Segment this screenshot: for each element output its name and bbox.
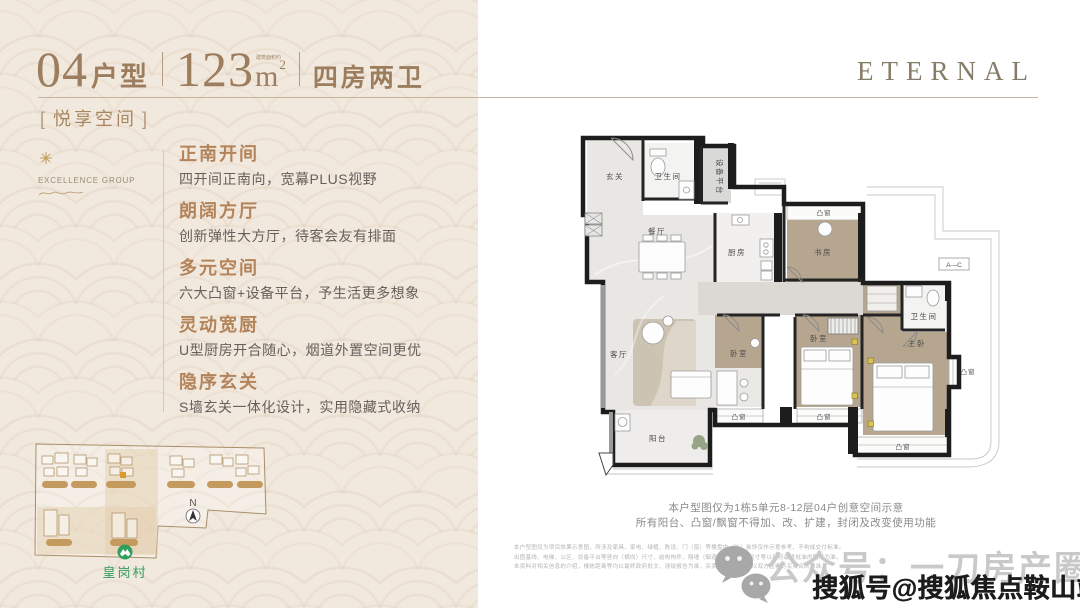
label-entry: 玄关 bbox=[606, 171, 624, 181]
feature-item: 灵动宽厨U型厨房开合随心，烟道外置空间更优 bbox=[179, 315, 471, 359]
feature-item: 隐序玄关S墙玄关一体化设计，实用隐藏式收纳 bbox=[179, 372, 471, 416]
caption-line-1: 本户型图仅为1栋5单元8-12层04户创意空间示意 bbox=[566, 501, 1006, 516]
area-value: 123 bbox=[176, 44, 254, 94]
label-balcony: 阳台 bbox=[649, 433, 667, 443]
metro-station-label: 皇岗村 bbox=[102, 565, 147, 580]
rooms-label: 四房两卫 bbox=[313, 58, 425, 94]
label-bath2: 卫生间 bbox=[911, 311, 938, 321]
label-study: 书房 bbox=[814, 247, 832, 257]
caption-line-2: 所有阳台、凸窗/飘窗不得加、改、扩建，封闭及改变使用功能 bbox=[566, 516, 1006, 531]
label-bedroom1: 卧室 bbox=[730, 348, 748, 358]
title-separator-2 bbox=[299, 52, 300, 86]
label-bath1: 卫生间 bbox=[655, 171, 682, 181]
brand-eternal: ETERNAL bbox=[857, 56, 1036, 87]
label-bay-b1: 凸窗 bbox=[732, 412, 747, 421]
feature-item: 朗阔方厅创新弹性大方厅，待客会友有排面 bbox=[179, 201, 471, 245]
tagline: [悦享空间] bbox=[35, 105, 155, 131]
flower-icon bbox=[38, 150, 54, 166]
label-bay-b2: 凸窗 bbox=[817, 412, 832, 421]
label-equipment: 设备平台 bbox=[715, 159, 725, 195]
title-separator bbox=[162, 52, 163, 86]
label-master: 主卧 bbox=[908, 338, 926, 348]
site-location-map: N 皇岗村 bbox=[8, 428, 308, 608]
label-kitchen: 厨房 bbox=[728, 247, 746, 257]
floor-plan: A—C 玄关 卫生间 设备平台 餐厅 厨房 书房 卫生间 客厅 阳台 卧室 卧室… bbox=[555, 125, 1025, 500]
developer-logo-name: EXCELLENCE GROUP bbox=[38, 176, 158, 185]
label-dining: 餐厅 bbox=[648, 227, 666, 236]
label-living: 客厅 bbox=[610, 349, 628, 359]
label-bedroom2: 卧室 bbox=[810, 333, 828, 343]
feature-item: 多元空间六大凸窗+设备平台，予生活更多想象 bbox=[179, 258, 471, 302]
logo-script-squiggle bbox=[38, 189, 84, 198]
developer-logo: EXCELLENCE GROUP bbox=[38, 150, 158, 203]
svg-text:N: N bbox=[189, 498, 196, 509]
feature-list: 正南开间四开间正南向，宽幕PLUS视野 朗阔方厅创新弹性大方厅，待客会友有排面 … bbox=[179, 144, 471, 429]
unit-title: 04 户型 123 建筑面积约m2 四房两卫 bbox=[36, 44, 425, 94]
label-bay-master-bottom: 凸窗 bbox=[896, 442, 911, 451]
label-bay-top: 凸窗 bbox=[817, 208, 832, 217]
floorplan-caption: 本户型图仅为1栋5单元8-12层04户创意空间示意 所有阳台、凸窗/飘窗不得加、… bbox=[566, 501, 1006, 531]
project-marker bbox=[120, 472, 126, 478]
label-bay-master-right: 凸窗 bbox=[961, 367, 976, 376]
feature-item: 正南开间四开间正南向，宽幕PLUS视野 bbox=[179, 144, 471, 188]
feature-divider-line bbox=[163, 150, 164, 412]
watermark-sohu-account: 搜狐号@搜狐焦点鞍山站 bbox=[812, 568, 1080, 605]
header-divider-line bbox=[38, 97, 1038, 98]
area-unit: 建筑面积约m2 bbox=[255, 57, 286, 92]
wechat-icon bbox=[712, 542, 774, 611]
area-note: 建筑面积约 bbox=[256, 54, 281, 61]
unit-number: 04 bbox=[36, 44, 88, 94]
unit-label: 户型 bbox=[91, 55, 149, 94]
elevation-marker: A—C bbox=[939, 258, 969, 270]
metro-station-icon bbox=[118, 545, 133, 560]
svg-text:A—C: A—C bbox=[946, 262, 962, 269]
